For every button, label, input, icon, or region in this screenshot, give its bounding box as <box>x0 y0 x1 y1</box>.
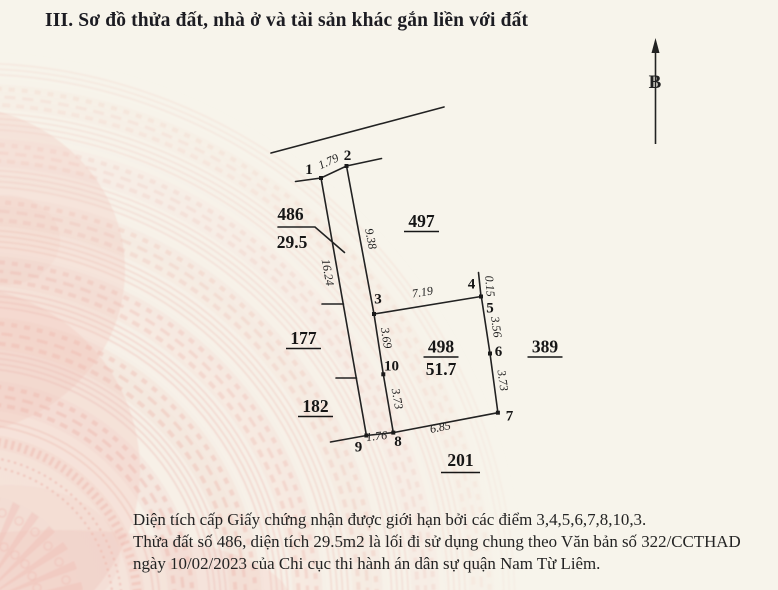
svg-text:8: 8 <box>394 434 402 450</box>
svg-text:3: 3 <box>374 292 382 308</box>
svg-text:0.15: 0.15 <box>482 275 498 297</box>
svg-text:201: 201 <box>447 450 473 470</box>
svg-text:389: 389 <box>532 337 559 357</box>
svg-text:1: 1 <box>305 162 313 178</box>
svg-text:29.5: 29.5 <box>277 232 308 252</box>
svg-text:7: 7 <box>506 409 514 425</box>
svg-text:2: 2 <box>344 148 352 164</box>
svg-text:182: 182 <box>302 396 328 416</box>
svg-text:497: 497 <box>408 211 435 231</box>
svg-text:B: B <box>649 72 662 93</box>
svg-text:498: 498 <box>428 337 455 357</box>
svg-text:1.76: 1.76 <box>365 428 387 444</box>
svg-text:486: 486 <box>277 204 304 224</box>
svg-text:5: 5 <box>486 301 494 317</box>
svg-text:177: 177 <box>290 328 317 348</box>
svg-text:4: 4 <box>468 277 476 293</box>
svg-text:6: 6 <box>495 344 503 360</box>
svg-text:9: 9 <box>355 440 363 456</box>
svg-text:51.7: 51.7 <box>426 359 457 379</box>
svg-text:10: 10 <box>384 359 399 375</box>
